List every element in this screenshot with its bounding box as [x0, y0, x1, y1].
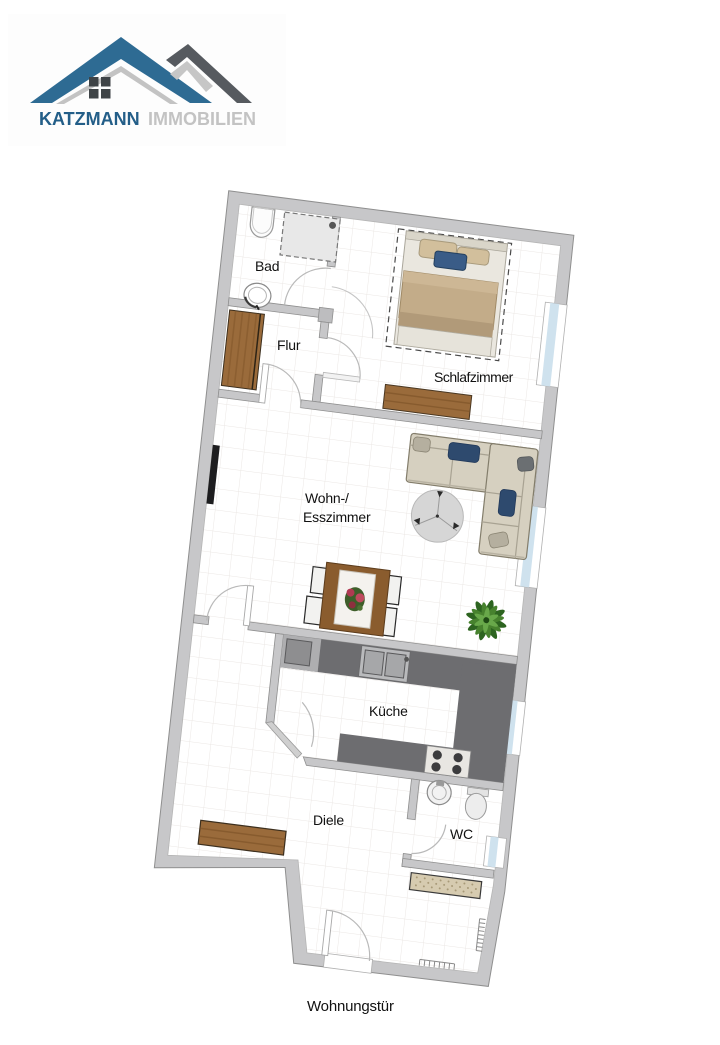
svg-text:Bad: Bad: [255, 258, 279, 274]
svg-text:Diele: Diele: [313, 812, 344, 828]
svg-text:Wohnungstür: Wohnungstür: [307, 998, 394, 1015]
svg-text:Flur: Flur: [277, 337, 301, 353]
svg-text:Küche: Küche: [369, 703, 408, 719]
svg-text:Esszimmer: Esszimmer: [303, 509, 371, 525]
svg-text:WC: WC: [450, 826, 473, 842]
svg-text:Wohn-/: Wohn-/: [305, 490, 349, 506]
svg-text:Schlafzimmer: Schlafzimmer: [434, 369, 514, 385]
